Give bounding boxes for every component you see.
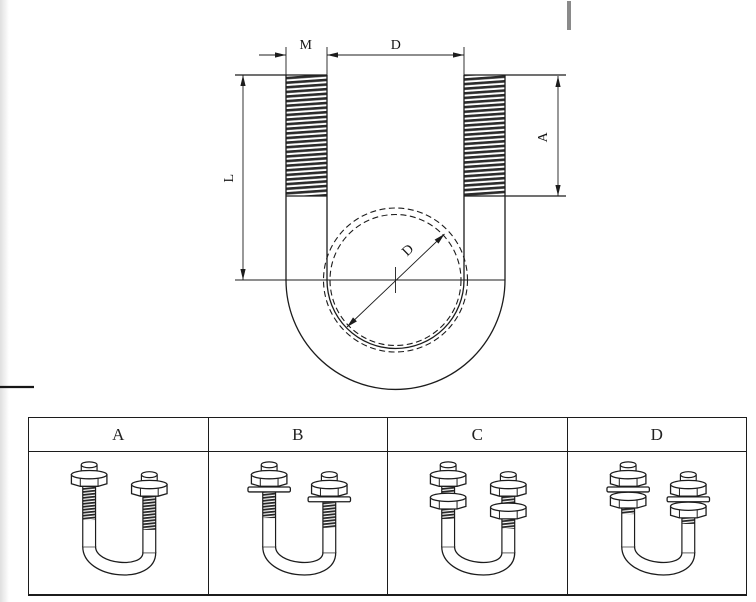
dim-label-pipe-diameter: D (400, 241, 418, 259)
ubolt-photo-c (388, 452, 567, 593)
arrow-m-left (275, 52, 286, 57)
dim-line-pipe-diameter (347, 234, 445, 327)
ubolt-photo-b (209, 452, 388, 593)
ubolt-photo-d (568, 452, 747, 593)
outer-bend-arc (286, 280, 505, 389)
column-header-b: B (209, 418, 389, 451)
variant-cell-c (388, 452, 568, 594)
scan-mark-top-right (567, 1, 571, 30)
arrow-a-bottom (555, 185, 560, 196)
dim-label-l: L (222, 173, 237, 182)
left-leg-threads (286, 75, 327, 196)
arrow-l-top (240, 75, 245, 86)
variant-table-body-row (29, 452, 746, 594)
dim-label-a: A (536, 131, 551, 142)
variant-table-header-row: A B C D (29, 418, 746, 452)
variant-cell-a (29, 452, 209, 594)
right-leg-threads (464, 75, 505, 196)
thread-hatching (286, 75, 505, 196)
dimension-lines (235, 47, 558, 327)
arrow-a-top (555, 76, 560, 87)
column-header-a: A (29, 418, 209, 451)
dim-label-m: M (300, 38, 313, 53)
ubolt-photo-a (29, 452, 208, 593)
column-header-c: C (388, 418, 568, 451)
ubolt-technical-drawing: M D L A D (0, 0, 756, 416)
variant-cell-d (568, 452, 747, 594)
column-header-d: D (568, 418, 747, 451)
variant-table: A B C D (28, 417, 747, 596)
variant-cell-b (209, 452, 389, 594)
arrow-l-bottom (240, 269, 245, 280)
ubolt-outline (235, 75, 566, 389)
dim-label-d-top: D (391, 38, 402, 53)
arrow-d-right (453, 52, 464, 57)
arrow-d-left (327, 52, 338, 57)
